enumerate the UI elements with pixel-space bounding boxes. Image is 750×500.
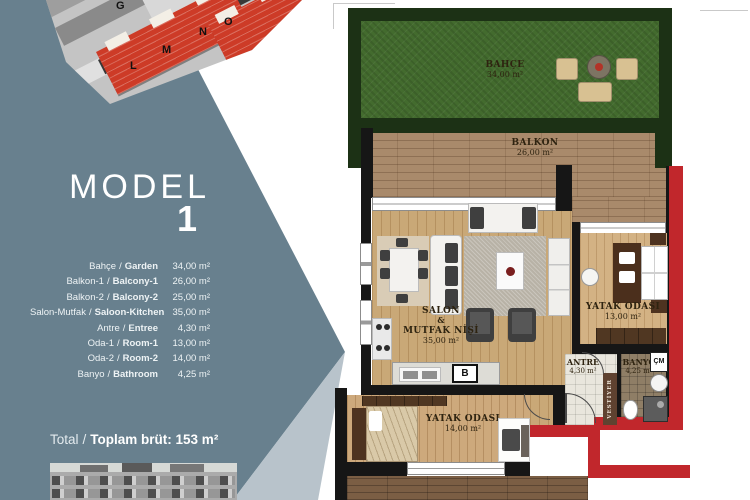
- dining-chair: [418, 268, 428, 279]
- desk-chair: [502, 429, 520, 451]
- neighbor-outline: [700, 10, 748, 11]
- garden-chair: [616, 58, 638, 80]
- sink-basin: [403, 371, 418, 379]
- bed2-mattress: [366, 406, 418, 462]
- garden-bench: [578, 82, 612, 102]
- burner: [376, 324, 382, 330]
- bed-duvet: [641, 246, 668, 300]
- salon-label: SALON & MUTFAK NİŞİ 35,00 m²: [386, 306, 496, 345]
- balcony2-deck: [347, 476, 588, 500]
- wall: [505, 462, 530, 476]
- kitchen-sink: [399, 367, 441, 382]
- bed-runner: [613, 243, 641, 303]
- dining-chair: [396, 294, 408, 303]
- sofa-cushion: [470, 207, 484, 229]
- roof-patch: [104, 31, 130, 51]
- roof-patch: [194, 0, 220, 6]
- bedroom2-window: [407, 462, 505, 475]
- vestiyer-closet: VESTİYER: [603, 373, 617, 425]
- neighbor-outline: [333, 3, 334, 29]
- wall: [347, 462, 407, 476]
- pillow: [369, 411, 382, 431]
- dining-table: [389, 248, 419, 292]
- garden-border-right: [655, 118, 672, 168]
- garden-table: [587, 55, 611, 79]
- dining-chair: [380, 268, 390, 279]
- bed2-headboard: [352, 408, 366, 460]
- shower-head: [657, 401, 664, 408]
- total-area: Total/Toplam brüt: 153 m²: [50, 432, 280, 447]
- armchair: [508, 308, 536, 342]
- red-wall: [588, 465, 690, 478]
- model-number: 1: [60, 198, 197, 240]
- nightstand: [650, 233, 666, 245]
- kitchen-counter: [392, 362, 500, 385]
- wardrobe2: [362, 396, 447, 406]
- dining-chair: [418, 250, 428, 261]
- salon-side-window: [360, 243, 372, 285]
- side-table: [581, 268, 599, 286]
- bedroom1-label: YATAK ODASI 13,00 m²: [580, 302, 666, 322]
- garden-border-left: [348, 118, 361, 168]
- kitchen-tall-unit: [548, 238, 570, 316]
- red-wall: [669, 166, 683, 429]
- list-item: Balkon-1/Balcony-126,00 m²: [30, 274, 210, 289]
- sofa: [430, 235, 462, 315]
- pillow: [619, 252, 635, 264]
- garden-chair: [556, 58, 578, 80]
- section-marker-b: B: [452, 364, 478, 383]
- site-block-label-n: N: [199, 26, 207, 38]
- pillow: [619, 271, 635, 283]
- desk: [521, 425, 529, 457]
- site-block-label-g: G: [116, 0, 125, 12]
- garden-table-decor: [595, 63, 603, 71]
- door-leaf: [565, 393, 567, 423]
- site-highlighted-block-no: [208, 0, 312, 63]
- washing-machine: ÇM: [650, 352, 668, 372]
- list-item: Balkon-2/Balcony-225,00 m²: [30, 290, 210, 305]
- desk-nook: [498, 418, 530, 462]
- neighbor-outline: [333, 3, 395, 4]
- list-item: Banyo/Bathroom4,25 m²: [30, 367, 210, 382]
- building-photo: [50, 463, 237, 500]
- wall: [361, 128, 373, 198]
- shower: [643, 396, 668, 422]
- dining-chair: [396, 238, 408, 247]
- wall: [335, 388, 347, 500]
- site-block-label-o: O: [224, 16, 233, 28]
- roof-patch: [257, 0, 281, 2]
- dining-chair: [380, 250, 390, 261]
- sink-basin: [422, 371, 437, 379]
- list-item: Bahçe/Garden34,00 m²: [30, 259, 210, 274]
- list-item: Oda-2/Room-214,00 m²: [30, 351, 210, 366]
- sofa-top: [468, 203, 538, 233]
- sofa-cushion: [445, 243, 458, 263]
- coffee-table: [496, 252, 524, 290]
- site-block-label-m: M: [162, 44, 171, 56]
- burner: [376, 345, 382, 351]
- bedroom2-label: YATAK ODASI 14,00 m²: [420, 414, 506, 434]
- salon-side-window: [360, 300, 372, 345]
- balcony-label: BALKON 26,00 m²: [460, 138, 610, 158]
- photo-window-row: [52, 489, 235, 498]
- site-block-label-l: L: [130, 60, 137, 72]
- red-wall: [528, 425, 594, 437]
- wall: [361, 198, 371, 394]
- list-item: Oda-1/Room-113,00 m²: [30, 336, 210, 351]
- toilet: [623, 400, 638, 420]
- list-item: Salon-Mutfak/Saloon-Kitchen35,00 m²: [30, 305, 210, 320]
- armchair-seat: [512, 312, 532, 334]
- sofa-cushion: [522, 207, 536, 229]
- bathroom-sink: [650, 374, 668, 392]
- sofa-cushion: [445, 266, 458, 286]
- photo-window-row: [52, 476, 235, 485]
- table-decor: [506, 267, 515, 276]
- burner: [384, 345, 390, 351]
- wardrobe: [596, 328, 666, 344]
- wall: [572, 222, 580, 357]
- room-area-list: Bahçe/Garden34,00 m² Balkon-1/Balcony-12…: [30, 259, 210, 382]
- list-item: Antre/Entree4,30 m²: [30, 321, 210, 336]
